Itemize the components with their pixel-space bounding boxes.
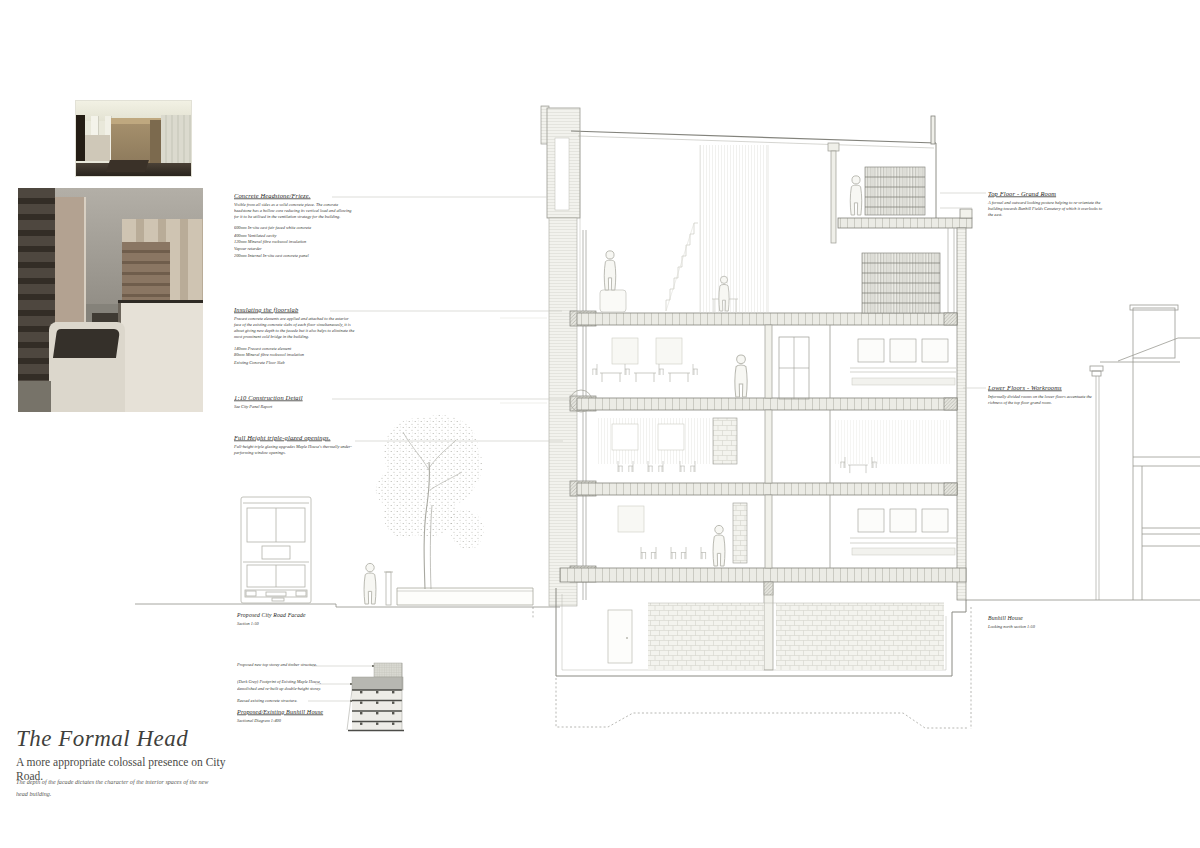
annotation-bunhill-house: Bunhill House Looking north section 1:50 <box>988 615 1103 630</box>
double-decker-bus <box>241 497 311 603</box>
render-glazing <box>161 115 191 163</box>
annotation-spec: 600mm In-situ cast fair faced white conc… <box>234 225 353 260</box>
caption-sub: Section 1:50 <box>237 621 352 627</box>
render-back-wall <box>85 135 110 161</box>
east-room-windows-1 <box>858 339 948 362</box>
interior-render-photo <box>75 100 192 177</box>
annotation-floorslab: Insulating the floorslab Precast concret… <box>234 306 356 366</box>
projection-lines <box>500 318 547 403</box>
diagram-maple-house <box>352 677 403 690</box>
basement-brick-left <box>648 603 764 670</box>
stair <box>666 223 698 311</box>
annotation-heading: Full Height triple-glazed openings. <box>234 434 356 441</box>
annotation-heading: Lower Floors - Workrooms <box>988 384 1107 391</box>
figure-level3 <box>713 525 725 566</box>
figure-library <box>850 176 861 215</box>
street-box-truck <box>118 300 203 412</box>
annotation-heading: Top Floor - Grand Room <box>988 190 1107 197</box>
sofa <box>600 290 626 312</box>
city-road-facade-strip <box>541 106 596 606</box>
annotation-spec: 140mm Precast concrete element 80mm Mine… <box>234 345 356 366</box>
workroom-level-1 <box>592 337 956 399</box>
annotation-body: Informally divided rooms on the lower fl… <box>988 393 1107 406</box>
basement <box>556 588 966 676</box>
east-room-windows-3 <box>858 509 948 532</box>
low-wall <box>397 588 533 605</box>
caption-city-road-facade: Proposed City Road Facade Section 1:50 <box>237 612 352 627</box>
diagram-callout-mid: (Dark Grey) Footprint of Existing Maple … <box>237 679 322 692</box>
facade-wall <box>549 218 577 606</box>
grand-room-column <box>831 151 836 243</box>
terrace-door <box>948 228 954 318</box>
sheet-title: The Formal Head <box>16 726 256 752</box>
render-plinth <box>106 160 149 172</box>
annotation-body: See City Panel Report <box>234 403 353 409</box>
mini-section-diagram <box>347 663 404 731</box>
annotation-construction-detail: 1:10 Construction Detail See City Panel … <box>234 394 353 410</box>
annotation-body: Visible from all sides as a solid concre… <box>234 201 353 220</box>
title-caption: The depth of the facade dictates the cha… <box>16 776 218 800</box>
street-view-photo <box>18 188 203 412</box>
triple-glazing-line <box>583 230 586 600</box>
workroom-level-3 <box>618 503 956 566</box>
caption-heading: Proposed/Existing Bunhill House <box>237 708 352 715</box>
mezzanine-slab <box>838 218 972 228</box>
annotation-heading: Concrete Headstone/Frieze. <box>234 192 353 199</box>
render-doorway <box>76 115 85 162</box>
annotation-heading: 1:10 Construction Detail <box>234 394 353 401</box>
basement-door <box>608 610 632 663</box>
annotation-body: Full-height triple glazing upgrades Mapl… <box>234 443 356 456</box>
annotation-heading: Bunhill House <box>988 615 1103 621</box>
roof-mast <box>931 116 935 144</box>
caption-sub: Sectional Diagram 1:400 <box>237 717 352 723</box>
basement-brick-right <box>776 603 944 670</box>
street-van-windshield <box>53 329 120 358</box>
presentation-sheet: Concrete Headstone/Frieze. Visible from … <box>0 0 1200 848</box>
brick-partition-2 <box>713 418 737 464</box>
diagram-callout-bottom: Reused existing concrete structure. <box>237 698 327 704</box>
render-volume-side <box>150 120 162 164</box>
grand-room-shaft <box>700 145 768 313</box>
east-wall <box>957 228 966 600</box>
neighbor-building-elevation <box>1090 305 1200 600</box>
caption-heading: Proposed City Road Facade <box>237 612 352 618</box>
annotation-concrete-headstone: Concrete Headstone/Frieze. Visible from … <box>234 192 353 260</box>
brick-partition-3 <box>733 503 747 563</box>
annotation-workrooms: Lower Floors - Workrooms Informally divi… <box>988 384 1107 406</box>
terrace-parapet <box>960 209 972 218</box>
annotation-heading: Insulating the floorslab <box>234 306 356 313</box>
figure-grand-room <box>604 251 615 290</box>
annotation-glazed-openings: Full Height triple-glazed openings. Full… <box>234 434 356 456</box>
pedestrian-figure <box>364 563 376 604</box>
bollard <box>384 572 393 605</box>
annotation-body: Looking north section 1:50 <box>988 624 1103 630</box>
headstone-hollow-core <box>555 138 569 210</box>
annotation-body: Precast concrete elements are applied an… <box>234 315 356 340</box>
figure-level1 <box>735 355 747 397</box>
street-foreground <box>18 381 51 412</box>
caption-sectional-diagram: Proposed/Existing Bunhill House Sectiona… <box>237 708 352 724</box>
annotation-grand-room: Top Floor - Grand Room A formal and outw… <box>988 190 1107 218</box>
bookshelf-upper <box>865 167 925 215</box>
annotation-body: A formal and outward looking posture hel… <box>988 199 1107 218</box>
workroom-level-2 <box>598 418 952 473</box>
diagram-callout-top: Proposed new top storey and timber struc… <box>237 662 327 668</box>
diagram-new-storey <box>374 663 402 677</box>
